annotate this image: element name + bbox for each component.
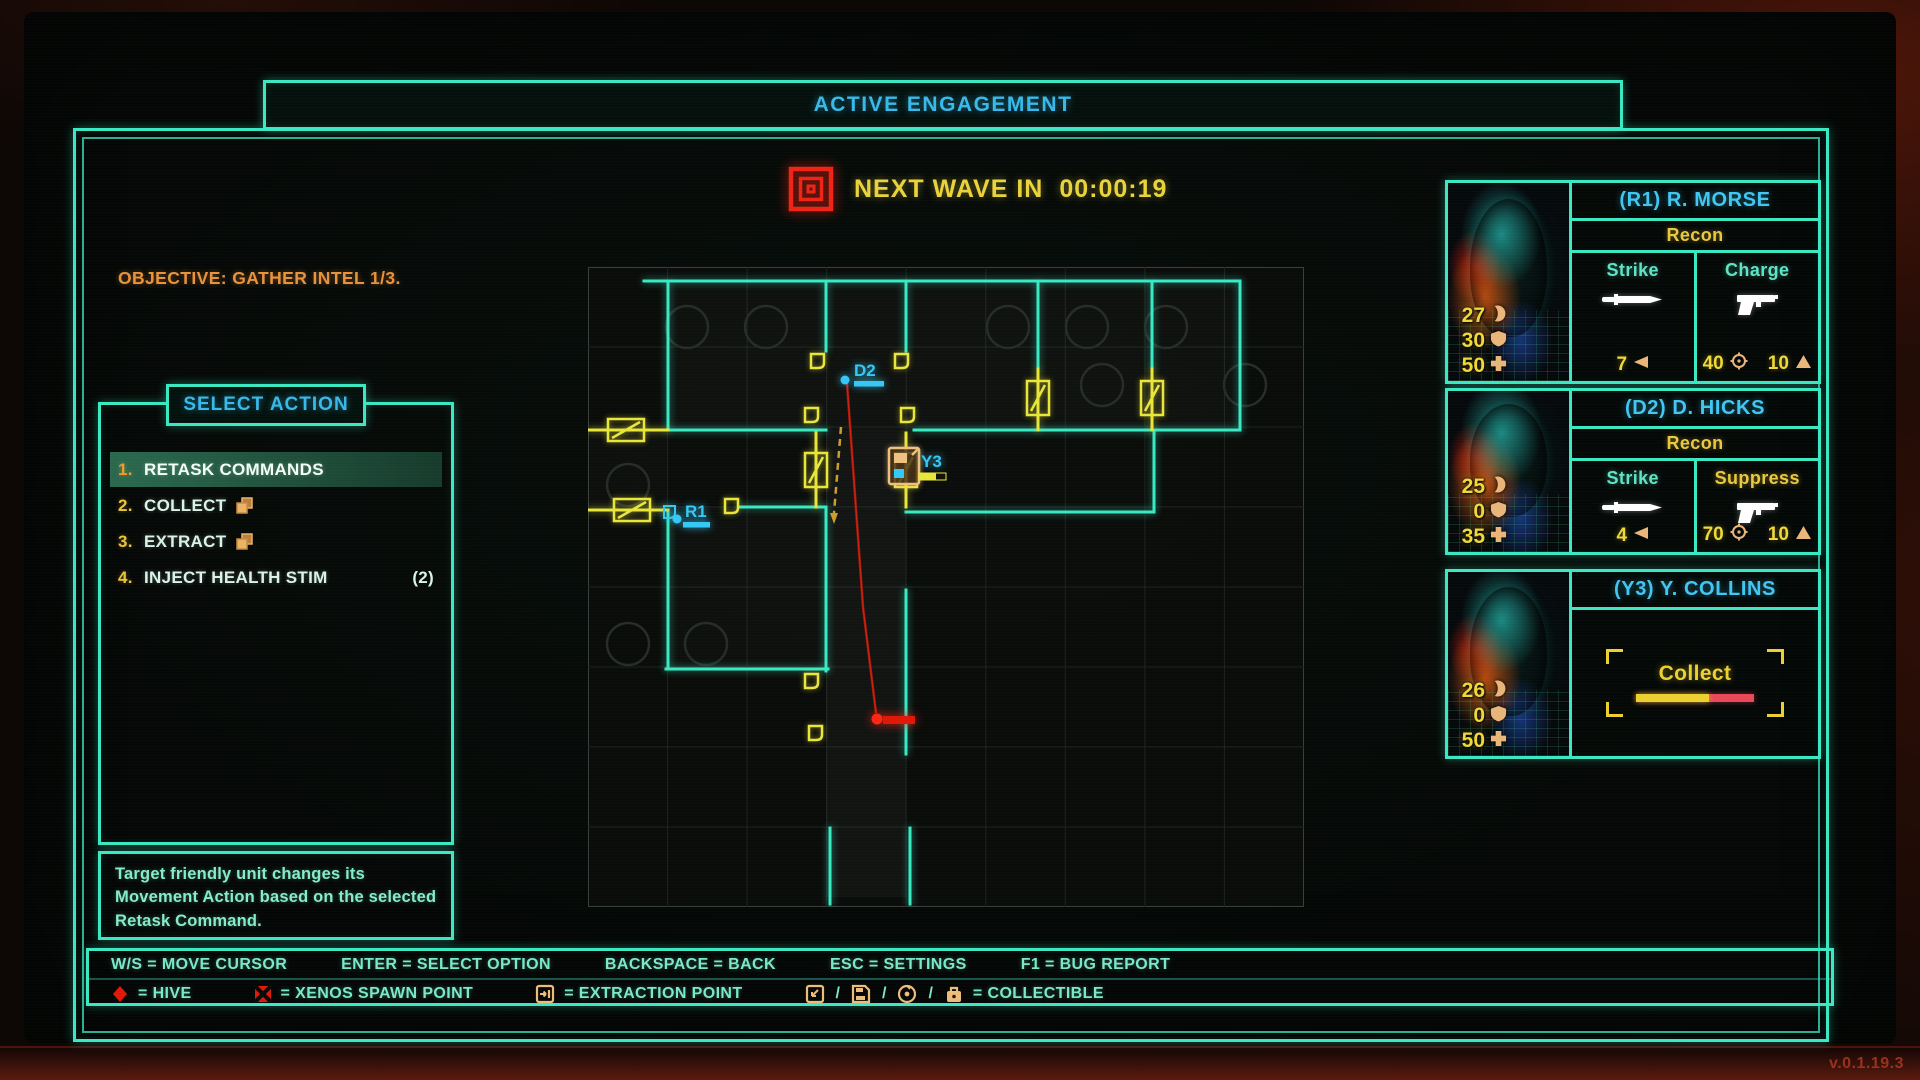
claw-icon — [1490, 476, 1507, 498]
collect-label: Collect — [1659, 662, 1732, 686]
case-icon — [944, 984, 964, 1004]
wave-label: NEXT WAVE IN — [854, 175, 1043, 204]
accuracy-icon — [1730, 523, 1748, 547]
select-action-panel: SELECT ACTION 1. RETASK COMMANDS 2. COLL… — [98, 402, 454, 845]
squad-card-d-hicks: 25 0 35 (D2) D. HICKS Recon Strike 4 — [1445, 388, 1821, 555]
hint-back: BACKSPACE = BACK — [605, 956, 776, 974]
health-icon — [1490, 730, 1507, 752]
ability-suppress[interactable]: Suppress 70 10 — [1694, 461, 1819, 552]
unit-name: (R1) R. MORSE — [1572, 183, 1818, 221]
menu-item-inject-health-stim[interactable]: 4. INJECT HEALTH STIM (2) — [110, 560, 442, 595]
menu-item-extract[interactable]: 3. EXTRACT — [110, 524, 442, 559]
collectible-icon — [235, 496, 254, 515]
claw-icon — [1490, 305, 1507, 327]
select-action-header: SELECT ACTION — [166, 384, 366, 426]
unit-stats: 27 30 50 — [1453, 304, 1507, 378]
unit-stats: 25 0 35 — [1453, 475, 1507, 549]
monitor-bezel: ACTIVE ENGAGEMENT NEXT WAVE IN 00:00:19 … — [0, 0, 1920, 1080]
extraction-icon — [535, 984, 555, 1004]
page-title: ACTIVE ENGAGEMENT — [814, 93, 1073, 117]
accuracy-icon — [1730, 352, 1748, 376]
unit-class: Recon — [1572, 221, 1818, 253]
ammo-icon — [1633, 354, 1649, 376]
gun-icon — [1734, 290, 1780, 321]
menu-item-retask-commands[interactable]: 1. RETASK COMMANDS — [110, 452, 442, 487]
hint-bug-report: F1 = BUG REPORT — [1021, 956, 1171, 974]
xenos-spawn-icon — [788, 166, 834, 212]
collectible-floppy-icon — [889, 448, 919, 484]
floppy-icon — [851, 984, 871, 1004]
save-arrow-icon — [805, 984, 825, 1004]
shield-icon — [1490, 705, 1507, 727]
unit-portrait: 27 30 50 — [1448, 183, 1572, 381]
collect-progress-bar — [1636, 694, 1754, 702]
version-label: v.0.1.19.3 — [1829, 1055, 1904, 1073]
svg-text:Y3: Y3 — [921, 452, 942, 471]
blast-icon — [1795, 524, 1812, 546]
hive-icon — [111, 985, 129, 1003]
squad-card-y-collins: 26 0 50 (Y3) Y. COLLINS Collect — [1445, 569, 1821, 759]
wave-countdown: 00:00:19 — [1059, 175, 1167, 204]
knife-icon — [1600, 498, 1666, 521]
hint-move-cursor: W/S = MOVE CURSOR — [111, 956, 287, 974]
unit-class: Recon — [1572, 429, 1818, 461]
tactical-map[interactable]: D2 R1 Y3 — [588, 267, 1304, 907]
unit-name: (Y3) Y. COLLINS — [1572, 572, 1818, 610]
disc-icon — [897, 984, 917, 1004]
legend-hive: = HIVE — [111, 985, 192, 1003]
menu-item-collect[interactable]: 2. COLLECT — [110, 488, 442, 523]
action-description: Target friendly unit changes its Movemen… — [115, 863, 437, 933]
claw-icon — [1490, 680, 1507, 702]
blast-icon — [1795, 353, 1812, 375]
unit-marker-y3[interactable]: Y3 — [889, 448, 946, 484]
health-icon — [1490, 526, 1507, 548]
squad-card-r-morse: 27 30 50 (R1) R. MORSE Recon Strike 7 — [1445, 180, 1821, 384]
ability-strike[interactable]: Strike 7 — [1572, 253, 1694, 381]
ability-strike[interactable]: Strike 4 — [1572, 461, 1694, 552]
unit-name: (D2) D. HICKS — [1572, 391, 1818, 429]
health-icon — [1490, 355, 1507, 377]
legend-xenos-spawn: = XENOS SPAWN POINT — [254, 985, 474, 1003]
controls-row: W/S = MOVE CURSOR ENTER = SELECT OPTION … — [89, 951, 1831, 978]
action-description-box: Target friendly unit changes its Movemen… — [98, 851, 454, 940]
unit-portrait: 26 0 50 — [1448, 572, 1572, 756]
bezel-bottom-strip — [0, 1046, 1920, 1080]
ammo-icon — [1633, 525, 1649, 547]
unit-portrait: 25 0 35 — [1448, 391, 1572, 552]
xenos-spawn-icon — [254, 985, 272, 1003]
collectible-icon — [235, 532, 254, 551]
ability-charge[interactable]: Charge 40 10 — [1694, 253, 1819, 381]
hint-select-option: ENTER = SELECT OPTION — [341, 956, 551, 974]
hint-settings: ESC = SETTINGS — [830, 956, 967, 974]
knife-icon — [1600, 290, 1666, 313]
stim-count: (2) — [412, 568, 434, 588]
wave-timer: NEXT WAVE IN 00:00:19 — [788, 166, 1167, 212]
legend-collectible: / / / = COLLECTIBLE — [805, 984, 1104, 1004]
shield-icon — [1490, 501, 1507, 523]
hint-bar: W/S = MOVE CURSOR ENTER = SELECT OPTION … — [86, 948, 1834, 1006]
svg-text:D2: D2 — [854, 361, 876, 380]
objective-text: OBJECTIVE: GATHER INTEL 1/3. — [118, 268, 401, 289]
svg-text:R1: R1 — [685, 502, 707, 521]
legend-row: = HIVE = XENOS SPAWN POINT = EXTRACTION … — [89, 980, 1831, 1007]
title-tab: ACTIVE ENGAGEMENT — [263, 80, 1623, 130]
legend-extraction: = EXTRACTION POINT — [535, 984, 742, 1004]
shield-icon — [1490, 330, 1507, 352]
action-menu-list: 1. RETASK COMMANDS 2. COLLECT 3. EXTRACT — [101, 451, 451, 596]
unit-stats: 26 0 50 — [1453, 679, 1507, 753]
collect-status: Collect — [1606, 649, 1784, 717]
